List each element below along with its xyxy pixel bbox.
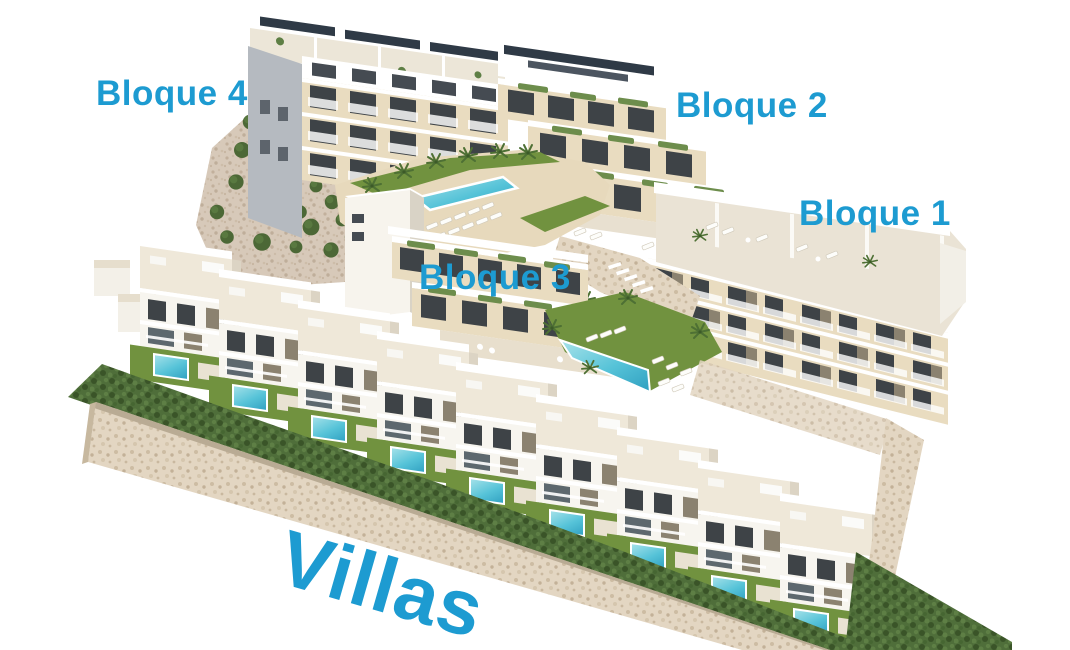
bloque-1-end-wall <box>940 243 966 324</box>
site-plan-rendering: Bloque 4 Bloque 2 Bloque 1 Bloque 3 Vill… <box>0 0 1070 650</box>
bloque-4-label: Bloque 4 <box>96 74 248 114</box>
bloque-1-label: Bloque 1 <box>799 194 951 234</box>
bloque-4-gable-wall <box>248 46 302 238</box>
bloque-3-label: Bloque 3 <box>419 258 571 298</box>
bloque-2-label: Bloque 2 <box>676 86 828 126</box>
corner-hedge <box>845 552 1012 650</box>
